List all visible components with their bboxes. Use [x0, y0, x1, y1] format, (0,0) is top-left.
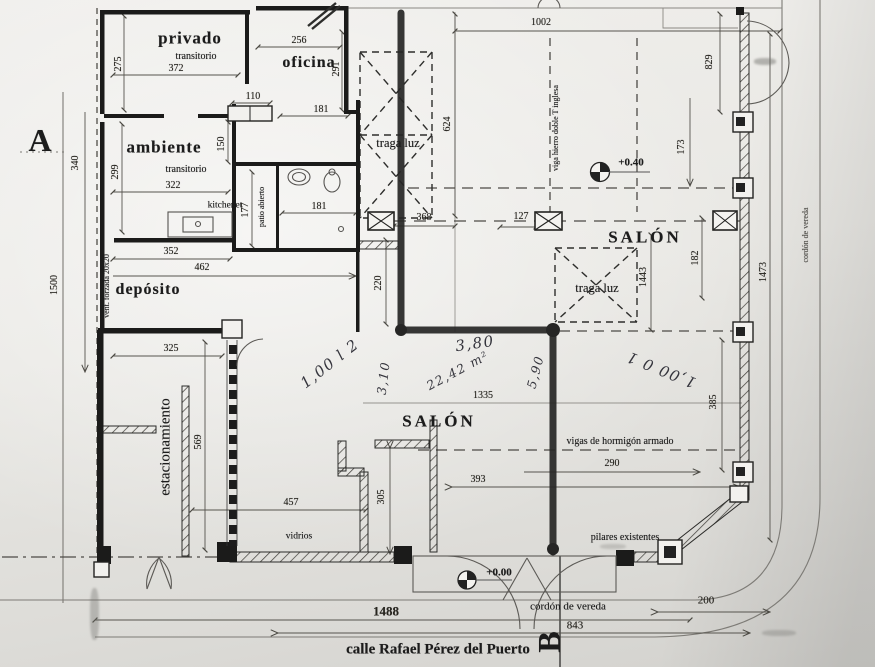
room-label-salon-centro: SALÓN [402, 413, 476, 430]
dim-368: 368 [417, 213, 432, 223]
label-viga-hierro: viga hierro doble T inglesa [552, 85, 560, 171]
dim-340: 340 [71, 156, 81, 171]
label-vent-forzada: vent. forzada 20x20 [103, 254, 111, 318]
room-label-estacionamiento: estacionamiento [159, 398, 174, 495]
dim-200: 200 [698, 596, 715, 607]
dim-1002: 1002 [531, 18, 551, 28]
dim-322: 322 [166, 181, 181, 191]
dim-1473: 1473 [759, 262, 769, 282]
level-salon: +0.40 [618, 158, 644, 169]
dim-181-top: 181 [314, 105, 329, 115]
level-entrada: +0.00 [486, 568, 512, 579]
room-label-ambiente: ambiente [126, 139, 201, 156]
dim-385: 385 [709, 395, 719, 410]
label-cordon-vereda-abajo: cordón de vereda [530, 602, 606, 613]
label-tragaluz-der: traga luz [575, 282, 618, 295]
pillar-caps [94, 106, 753, 577]
dim-1500: 1500 [50, 275, 60, 295]
dim-462: 462 [195, 263, 210, 273]
dim-275: 275 [114, 57, 124, 72]
dim-127: 127 [514, 212, 529, 222]
toothed-wall [227, 340, 237, 546]
label-cordon-vereda-derecha: cordón de vereda [802, 207, 810, 262]
dim-829: 829 [705, 55, 715, 70]
dim-291: 291 [332, 62, 342, 77]
room-sublabel-ambiente: transitorio [165, 165, 206, 175]
dim-256: 256 [292, 36, 307, 46]
floor-plan-scan: A B privado transitorio oficina ambiente… [0, 0, 875, 667]
dim-150: 150 [217, 137, 227, 152]
dim-1443: 1443 [639, 267, 649, 287]
dim-393: 393 [471, 475, 486, 485]
room-label-oficina: oficina [282, 55, 335, 71]
scan-smudge [762, 630, 796, 636]
dim-569: 569 [194, 435, 204, 450]
dim-1335: 1335 [473, 391, 493, 401]
label-tragaluz-izq: traga luz [376, 137, 419, 150]
label-calle: calle Rafael Pérez del Puerto [346, 643, 530, 658]
section-mark-a: A [28, 124, 51, 156]
room-label-deposito: depósito [116, 282, 181, 298]
section-mark-b: B [533, 631, 565, 652]
label-vigas-hormigon: vigas de hormigón armado [567, 437, 674, 447]
dim-843: 843 [567, 621, 584, 632]
dim-110: 110 [246, 92, 261, 102]
label-vidrios: vidrios [286, 532, 312, 542]
dim-181-bano: 181 [312, 202, 327, 212]
dim-457: 457 [284, 498, 299, 508]
dim-325: 325 [164, 344, 179, 354]
room-label-patio-abierto: patio abierto [258, 187, 266, 227]
scan-smudge [754, 58, 776, 65]
dim-305: 305 [377, 490, 387, 505]
dim-352: 352 [164, 247, 179, 257]
dim-372: 372 [169, 64, 184, 74]
room-label-kitchenet: kitchenet [208, 201, 243, 211]
label-pilares-existentes: pilares existentes [591, 533, 660, 543]
dim-173: 173 [677, 140, 687, 155]
dim-624: 624 [443, 117, 453, 132]
scan-smudge [600, 544, 626, 549]
dim-299: 299 [111, 165, 121, 180]
scan-smudge [90, 588, 99, 640]
dim-220: 220 [374, 276, 384, 291]
room-sublabel-privado: transitorio [175, 52, 216, 62]
dim-177: 177 [241, 203, 251, 218]
dim-1488: 1488 [373, 605, 399, 618]
room-label-privado: privado [158, 30, 222, 47]
hatched-walls [100, 13, 749, 562]
plan-linework [0, 0, 875, 667]
room-label-salon-derecha: SALÓN [608, 229, 682, 246]
dim-182: 182 [691, 251, 701, 266]
dim-290: 290 [605, 459, 620, 469]
